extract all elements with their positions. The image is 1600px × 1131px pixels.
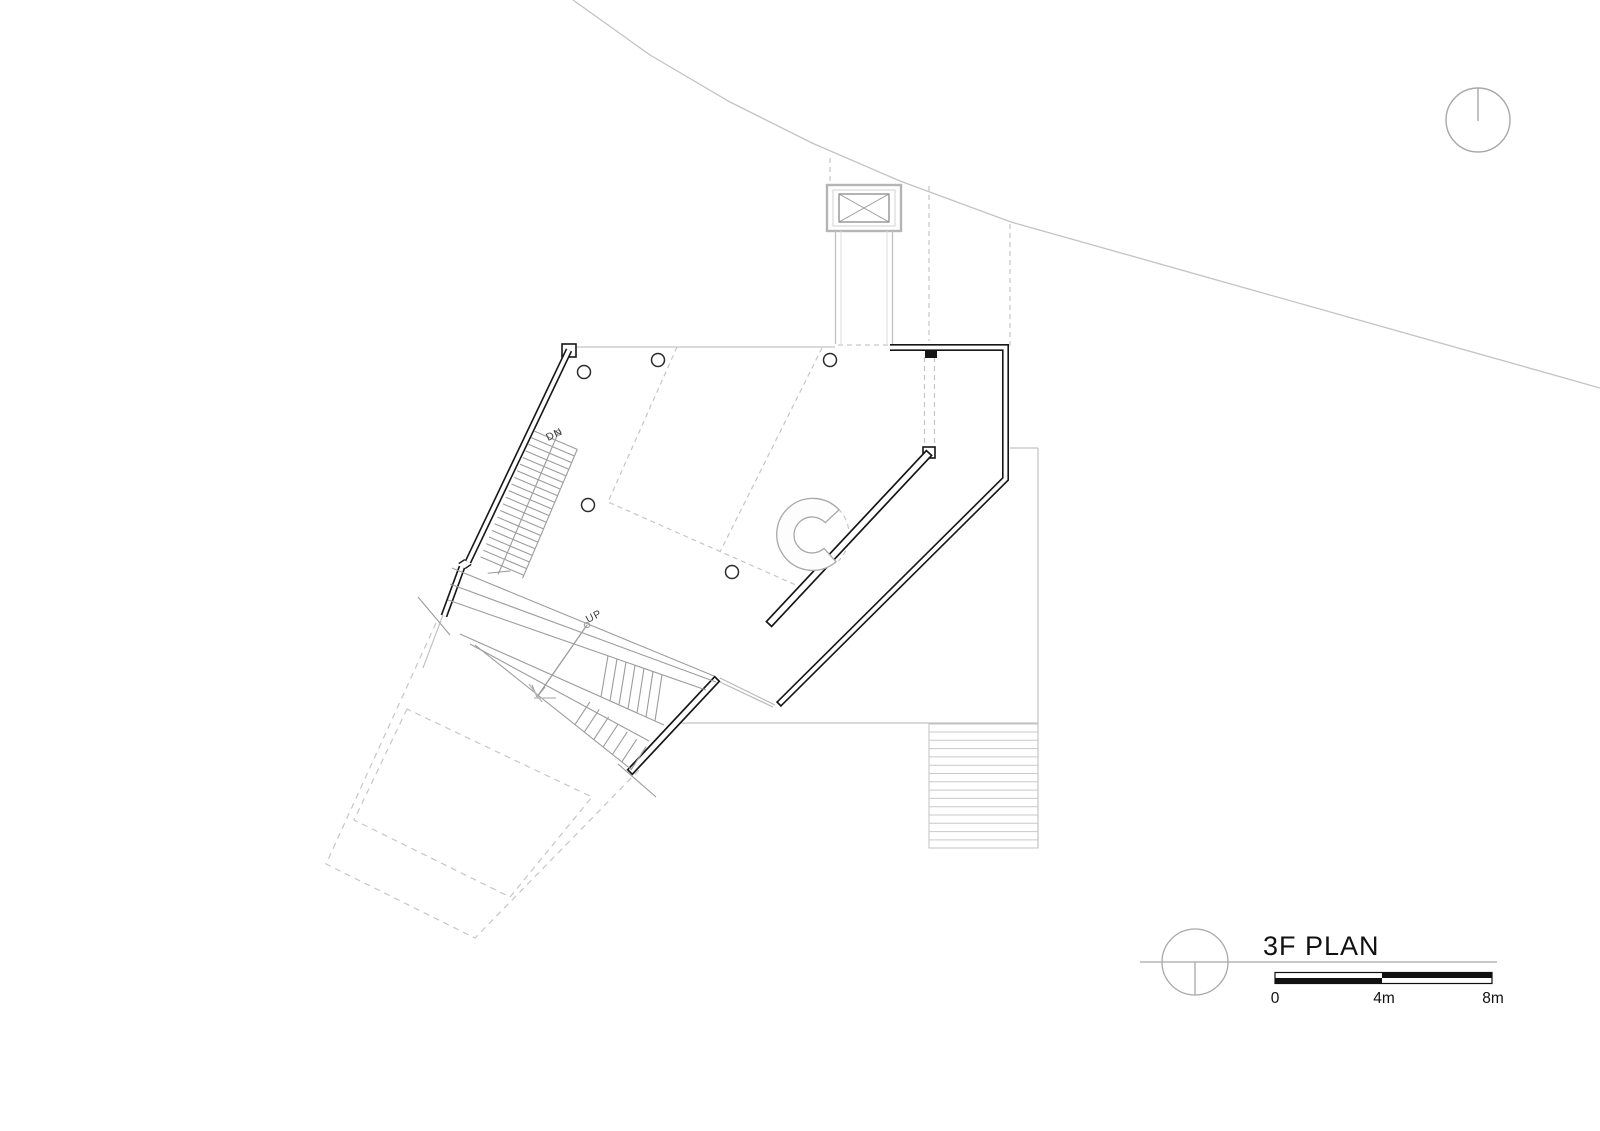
elevator-shaft xyxy=(827,185,901,344)
site-contour-line xyxy=(573,0,1600,388)
stair-down-label: DN xyxy=(544,426,565,444)
column xyxy=(652,354,665,367)
lower-floor-outline-dashed xyxy=(326,623,640,938)
scale-label-0: 0 xyxy=(1271,990,1280,1007)
external-stair xyxy=(929,724,1038,848)
title-block: 3F PLAN 0 4m 8m xyxy=(1140,929,1504,1007)
column xyxy=(578,366,591,379)
elevator-cab-icon xyxy=(839,194,889,222)
column xyxy=(726,566,739,579)
column xyxy=(824,354,837,367)
scale-label-4m: 4m xyxy=(1373,990,1395,1007)
wall-right xyxy=(777,348,1006,707)
glazing-lines xyxy=(720,678,775,707)
walk-line xyxy=(532,622,590,697)
stair-up-label: UP xyxy=(584,607,604,625)
scale-bar: 0 4m 8m xyxy=(1271,973,1504,1008)
floor-plan-sheet: DN xyxy=(0,0,1600,1131)
stair-down: DN xyxy=(476,421,582,586)
column xyxy=(582,499,595,512)
scale-label-8m: 8m xyxy=(1482,990,1504,1007)
stair-up xyxy=(418,568,716,797)
plan-drawing: DN xyxy=(0,0,1600,1131)
wall-stair-side xyxy=(628,677,720,775)
exterior-walls xyxy=(444,344,1006,774)
lower-floor-edges xyxy=(423,347,1038,848)
page-title: 3F PLAN xyxy=(1263,931,1380,961)
north-indicator-icon xyxy=(1446,88,1510,152)
curved-wall xyxy=(777,498,839,570)
